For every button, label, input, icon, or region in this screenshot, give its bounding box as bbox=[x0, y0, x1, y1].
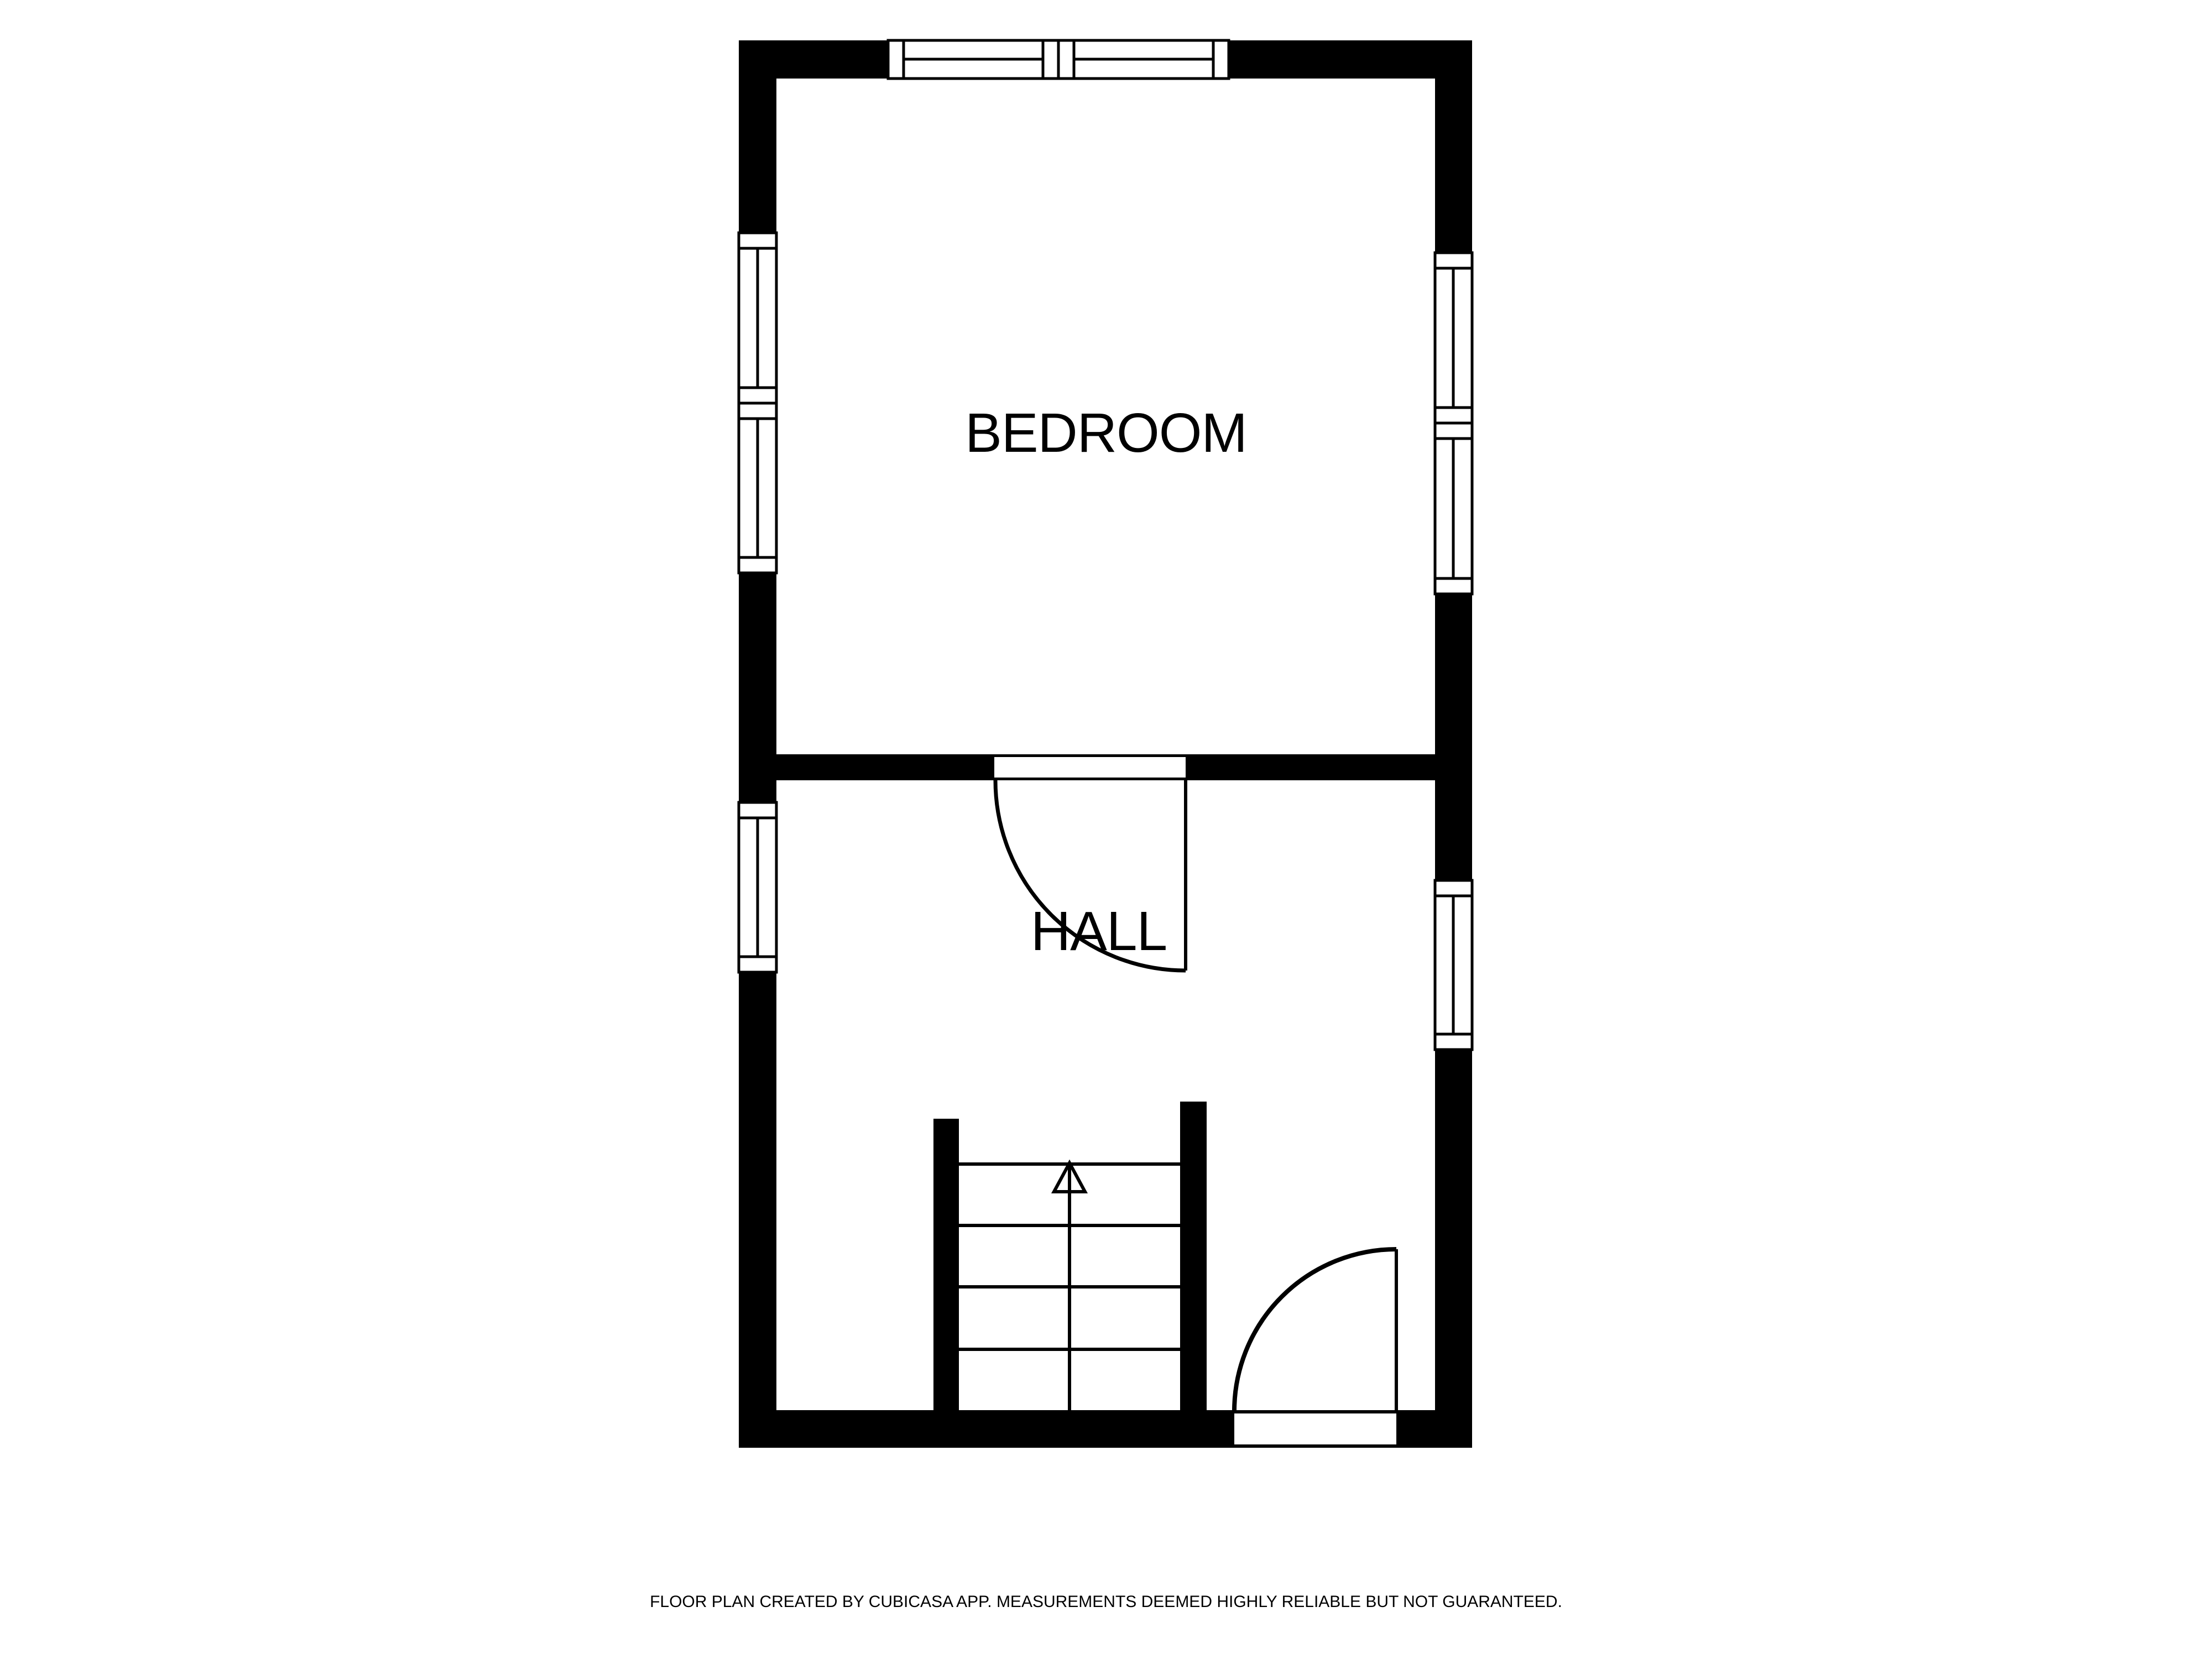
stair-wall-right bbox=[1180, 1102, 1207, 1410]
window-right-hall bbox=[1435, 880, 1472, 1050]
footer-disclaimer: FLOOR PLAN CREATED BY CUBICASA APP. MEAS… bbox=[650, 1594, 1562, 1610]
window-left-bedroom-1 bbox=[739, 233, 776, 403]
floor-plan-drawing bbox=[0, 0, 2212, 1659]
bedroom-label: BEDROOM bbox=[965, 405, 1247, 461]
wall-left-lower-segment bbox=[739, 972, 776, 1448]
window-top-1 bbox=[888, 40, 1058, 79]
wall-interior-left-segment bbox=[776, 754, 994, 780]
window-left-bedroom-2 bbox=[739, 403, 776, 573]
wall-right-lower-segment bbox=[1435, 1050, 1472, 1448]
window-right-bedroom-2 bbox=[1435, 423, 1472, 594]
door-interior-threshold bbox=[994, 754, 1186, 780]
wall-left-middle-segment bbox=[739, 573, 776, 802]
wall-interior-right-segment bbox=[1186, 754, 1435, 780]
wall-bottom-right-segment bbox=[1396, 1410, 1472, 1448]
window-left-hall bbox=[739, 802, 776, 972]
window-right-bedroom-1 bbox=[1435, 253, 1472, 423]
wall-left-upper-segment bbox=[739, 40, 776, 233]
window-top-2 bbox=[1058, 40, 1229, 79]
wall-right-upper-segment bbox=[1435, 40, 1472, 253]
door-entry-threshold bbox=[1234, 1410, 1396, 1448]
wall-right-middle-segment bbox=[1435, 594, 1472, 880]
wall-bottom-left-segment bbox=[739, 1410, 1234, 1448]
floor-plan-page: BEDROOM HALL FLOOR PLAN CREATED BY CUBIC… bbox=[0, 0, 2212, 1659]
stair-wall-left bbox=[933, 1119, 959, 1410]
hall-label: HALL bbox=[1031, 904, 1167, 959]
